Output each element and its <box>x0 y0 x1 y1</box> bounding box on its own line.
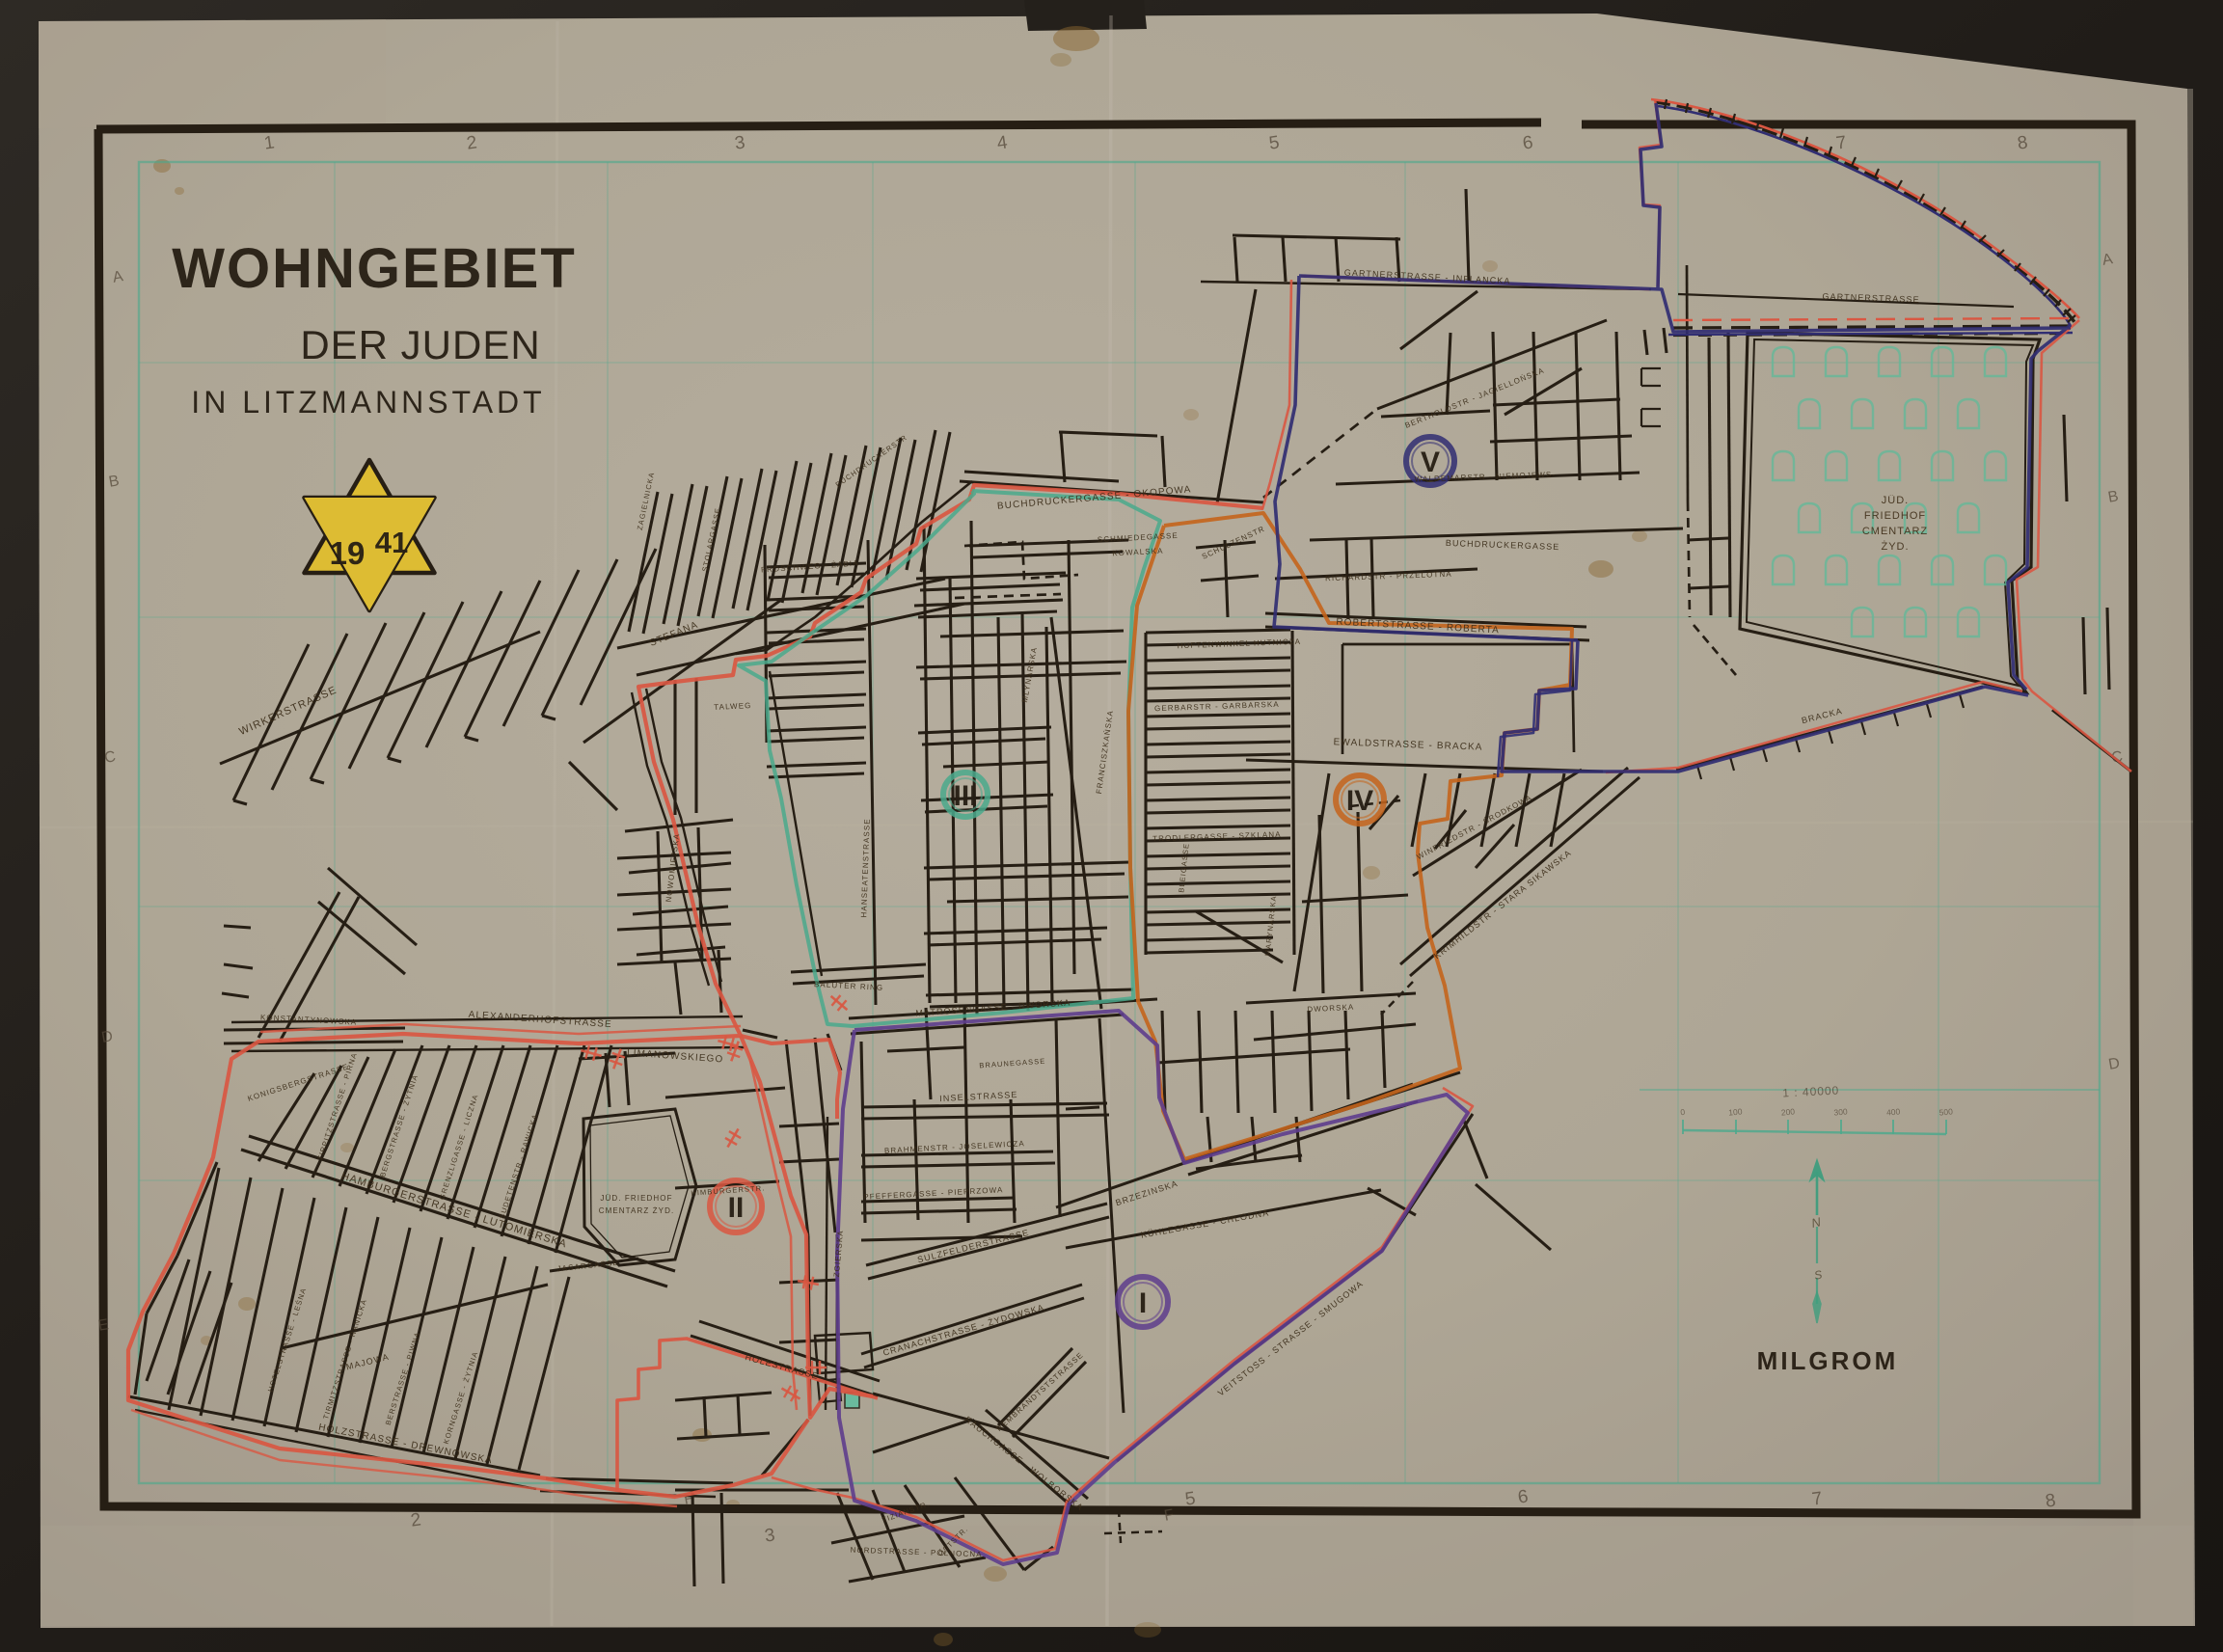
svg-text:JÜD. FRIEDHOF: JÜD. FRIEDHOF <box>600 1194 672 1203</box>
svg-text:JÜD.: JÜD. <box>1882 495 1909 506</box>
svg-text:100: 100 <box>1728 1106 1743 1117</box>
svg-text:DER JUDEN: DER JUDEN <box>300 322 540 367</box>
svg-text:I: I <box>1139 1287 1147 1319</box>
svg-text:IV: IV <box>1346 785 1373 817</box>
svg-text:MILGROM: MILGROM <box>1757 1346 1899 1375</box>
svg-text:IN LITZMANNSTADT: IN LITZMANNSTADT <box>191 385 545 420</box>
svg-text:CMENTARZ: CMENTARZ <box>1862 526 1928 537</box>
svg-text:41: 41 <box>375 526 408 559</box>
svg-text:FRIEDHOF: FRIEDHOF <box>1864 510 1926 522</box>
svg-text:ŻYD.: ŻYD. <box>1881 540 1909 553</box>
svg-text:19: 19 <box>330 535 366 571</box>
svg-text:500: 500 <box>1938 1106 1953 1117</box>
svg-text:II: II <box>728 1192 745 1224</box>
svg-text:III: III <box>953 780 977 812</box>
svg-text:300: 300 <box>1833 1106 1848 1117</box>
svg-text:400: 400 <box>1886 1106 1901 1117</box>
svg-text:CMENTARZ ŻYD.: CMENTARZ ŻYD. <box>599 1206 675 1215</box>
svg-text:WOHNGEBIET: WOHNGEBIET <box>172 237 577 300</box>
svg-text:200: 200 <box>1780 1106 1795 1117</box>
